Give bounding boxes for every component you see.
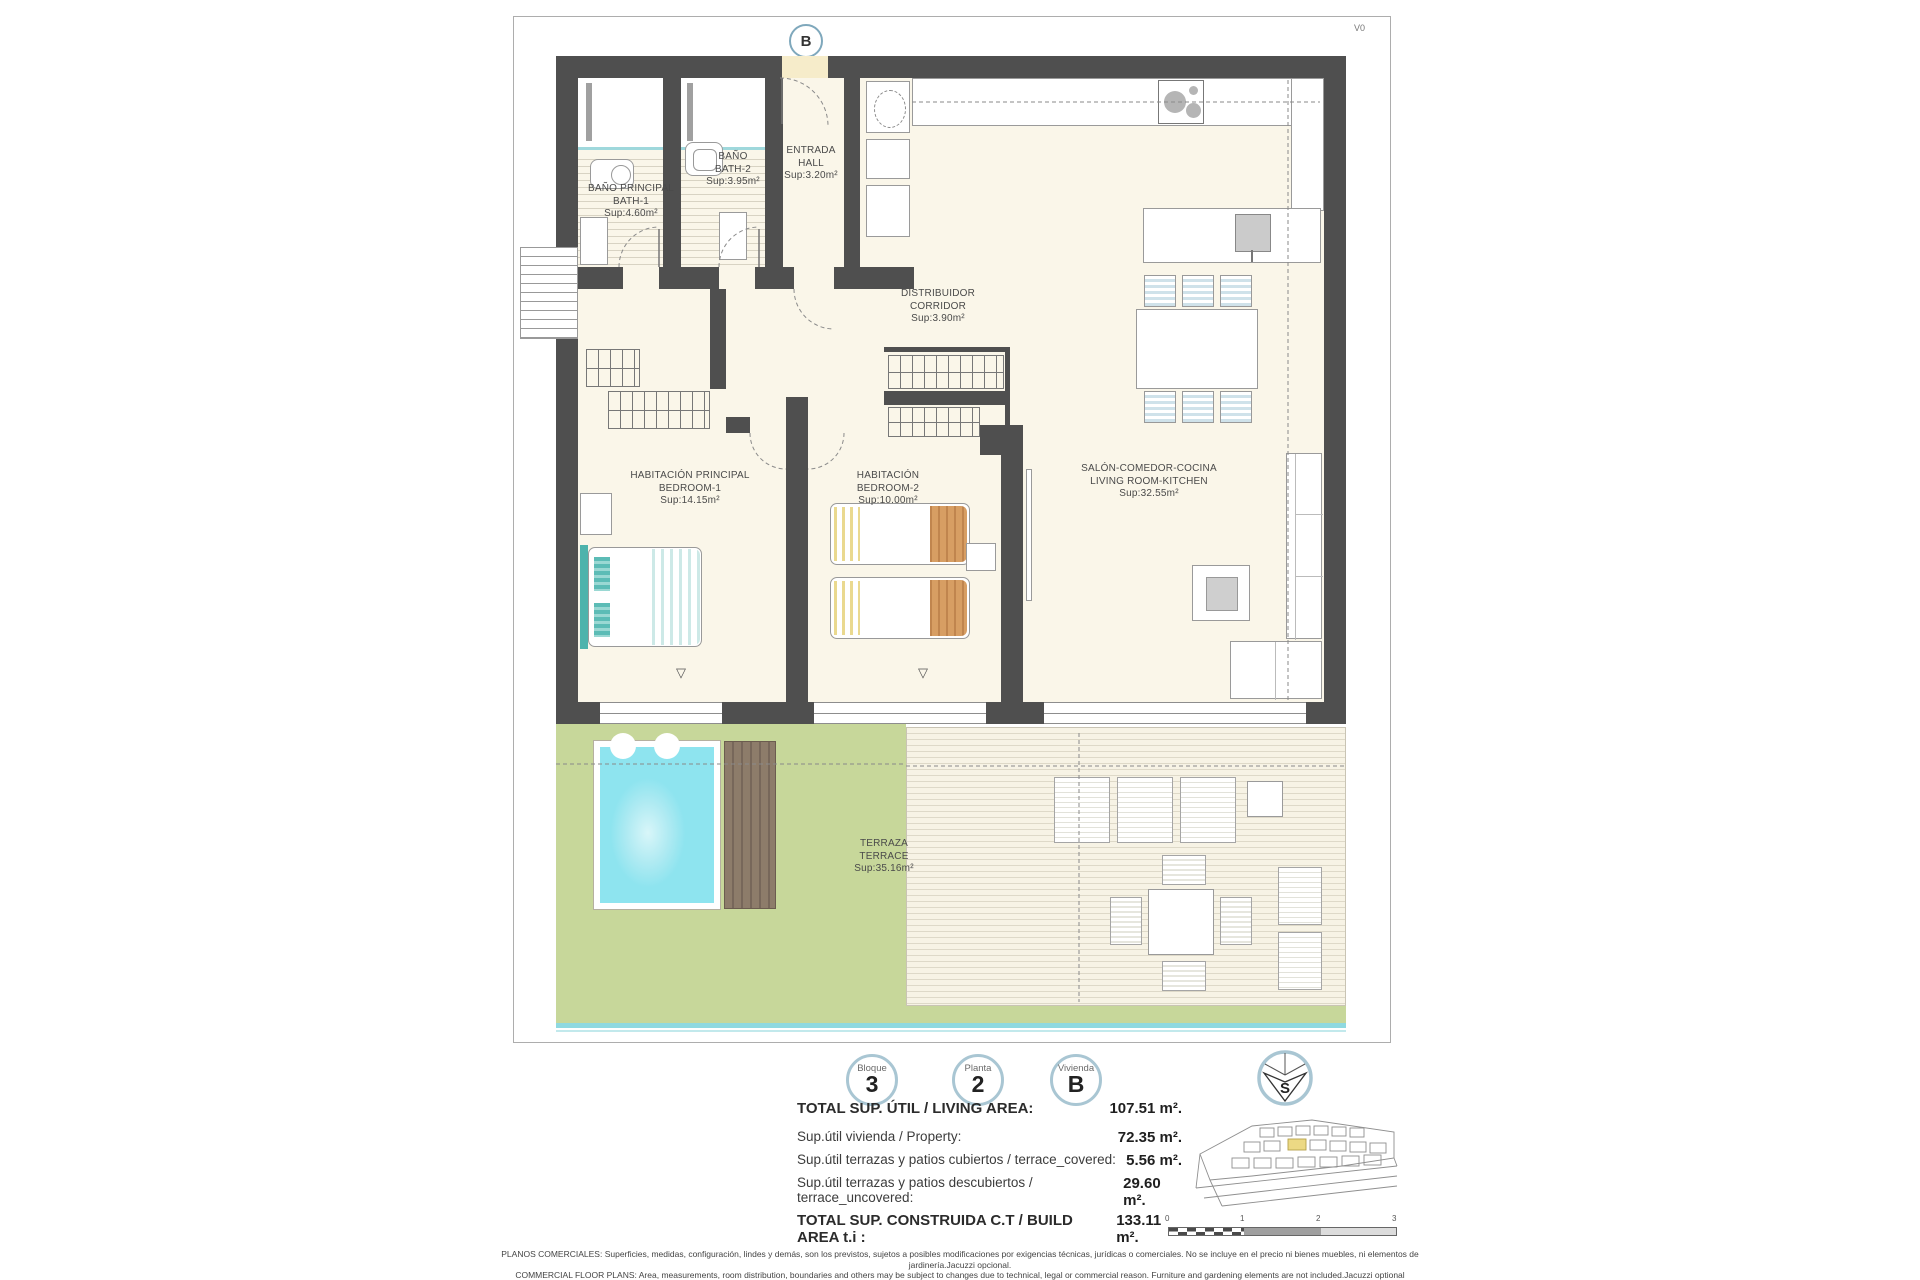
badge-planta: Planta 2 xyxy=(952,1054,1004,1106)
area-label: Sup.útil terrazas y patios descubiertos … xyxy=(797,1175,1123,1209)
scale-tick-2: 2 xyxy=(1316,1214,1320,1223)
area-row-terrace-covered: Sup.útil terrazas y patios cubiertos / t… xyxy=(797,1152,1182,1169)
scale-seg-end xyxy=(1321,1228,1396,1235)
scale-tick-0: 0 xyxy=(1165,1214,1169,1223)
area-row-property: Sup.útil vivienda / Property: 72.35 m². xyxy=(797,1129,1182,1146)
building-sketch xyxy=(1192,1092,1402,1212)
scale-bar xyxy=(1168,1227,1397,1236)
room-label-bedroom1: HABITACIÓN PRINCIPALBEDROOM-1Sup:14.15m² xyxy=(620,470,760,508)
area-label: Sup.útil terrazas y patios cubiertos / t… xyxy=(797,1152,1116,1169)
area-row-total-build: TOTAL SUP. CONSTRUIDA C.T / BUILD AREA t… xyxy=(797,1212,1182,1246)
scale-tick-1: 1 xyxy=(1240,1214,1244,1223)
scale-tick-3: 3 xyxy=(1392,1214,1396,1223)
badge-bloque: Bloque 3 xyxy=(846,1054,898,1106)
disclaimer-line-en: COMMERCIAL FLOOR PLANS: Area, measuremen… xyxy=(480,1270,1440,1280)
floor-plan-page: V0 B xyxy=(0,0,1920,1280)
door-swing-arcs xyxy=(514,17,1390,1042)
room-label-bath1: BAÑO PRINCIPALBATH-1Sup:4.60m² xyxy=(561,183,701,221)
room-label-bedroom2: HABITACIÓNBEDROOM-2Sup:10.00m² xyxy=(818,470,958,508)
badge-bloque-value: 3 xyxy=(849,1074,895,1094)
unit-highlight xyxy=(1288,1139,1306,1150)
badge-vivienda: Vivienda B xyxy=(1050,1054,1102,1106)
area-label: Sup.útil vivienda / Property: xyxy=(797,1129,961,1146)
badge-planta-value: 2 xyxy=(955,1074,1001,1094)
area-value: 107.51 m². xyxy=(1109,1100,1182,1117)
area-row-total-living: TOTAL SUP. ÚTIL / LIVING AREA: 107.51 m²… xyxy=(797,1100,1182,1117)
area-value: 72.35 m². xyxy=(1118,1129,1182,1146)
room-label-terrace: TERRAZATERRACESup:35.16m² xyxy=(814,838,954,876)
room-label-corridor: DISTRIBUIDORCORRIDORSup:3.90m² xyxy=(868,288,1008,326)
area-value: 29.60 m². xyxy=(1123,1175,1182,1209)
disclaimer-line-es: PLANOS COMERCIALES: Superficies, medidas… xyxy=(480,1249,1440,1270)
area-label: TOTAL SUP. ÚTIL / LIVING AREA: xyxy=(797,1100,1033,1117)
room-label-hall: ENTRADAHALLSup:3.20m² xyxy=(741,145,881,183)
scale-seg-mid xyxy=(1244,1228,1321,1235)
scale-seg-checker xyxy=(1169,1228,1244,1235)
area-value: 5.56 m². xyxy=(1126,1152,1182,1169)
plan-sheet: V0 B xyxy=(513,16,1391,1043)
area-label: TOTAL SUP. CONSTRUIDA C.T / BUILD AREA t… xyxy=(797,1212,1116,1246)
room-label-living: SALÓN-COMEDOR-COCINALIVING ROOM-KITCHENS… xyxy=(1069,463,1229,501)
badge-vivienda-value: B xyxy=(1053,1074,1099,1094)
area-row-terrace-uncovered: Sup.útil terrazas y patios descubiertos … xyxy=(797,1175,1182,1209)
disclaimer: PLANOS COMERCIALES: Superficies, medidas… xyxy=(480,1249,1440,1280)
